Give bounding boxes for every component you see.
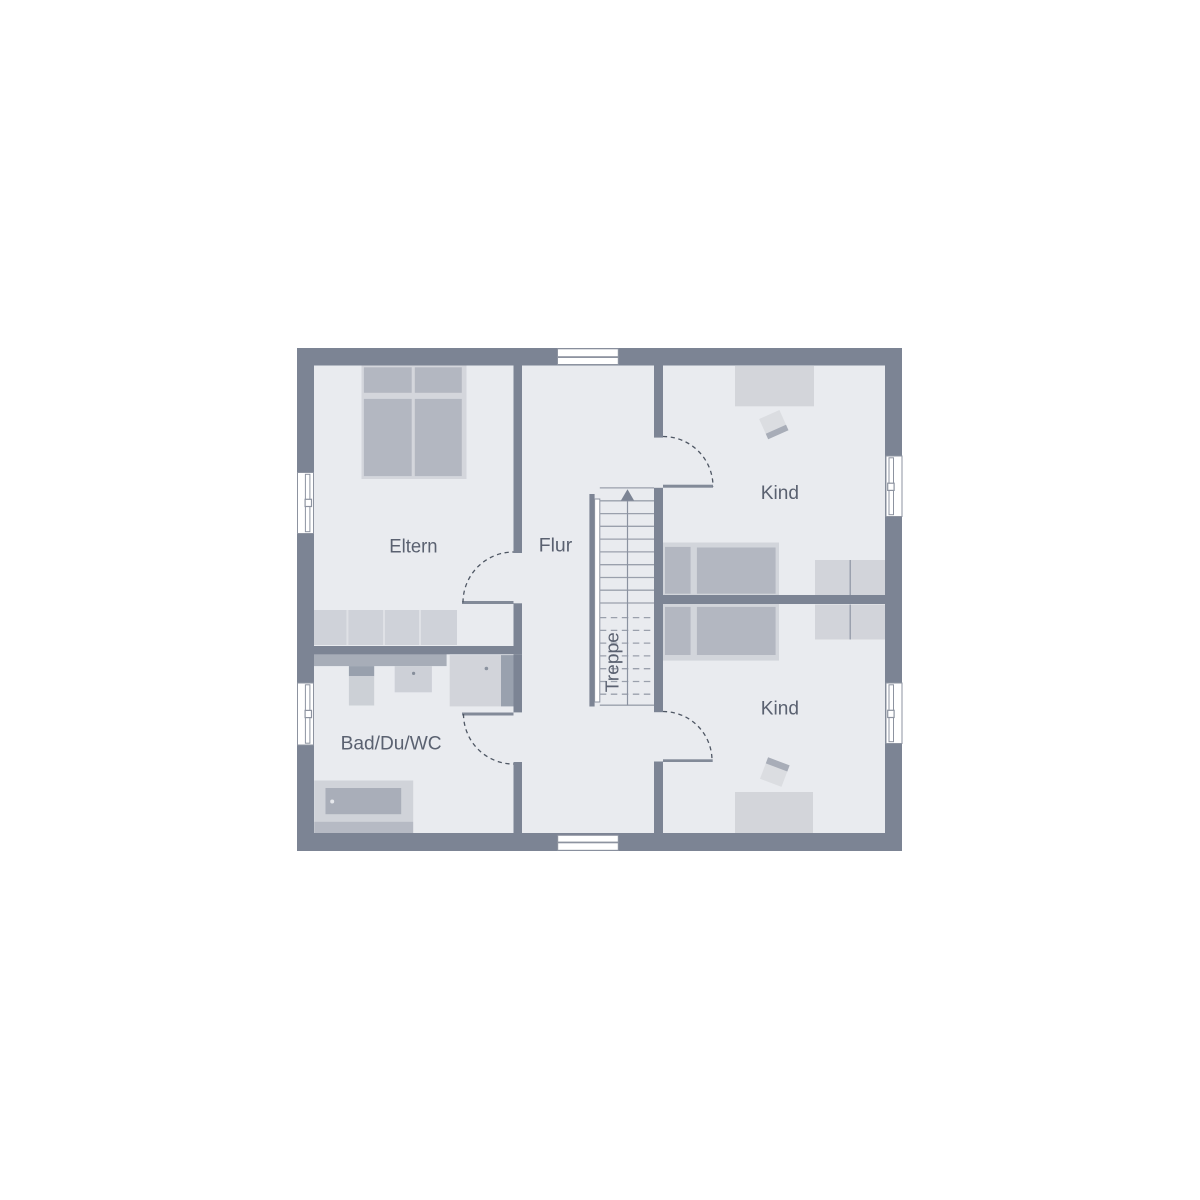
svg-text:Treppe: Treppe	[603, 632, 623, 692]
svg-text:Flur: Flur	[539, 535, 573, 557]
svg-text:Kind: Kind	[761, 482, 799, 504]
svg-text:Kind: Kind	[761, 698, 799, 720]
svg-text:Bad/Du/WC: Bad/Du/WC	[341, 732, 442, 754]
svg-text:Eltern: Eltern	[389, 536, 437, 558]
